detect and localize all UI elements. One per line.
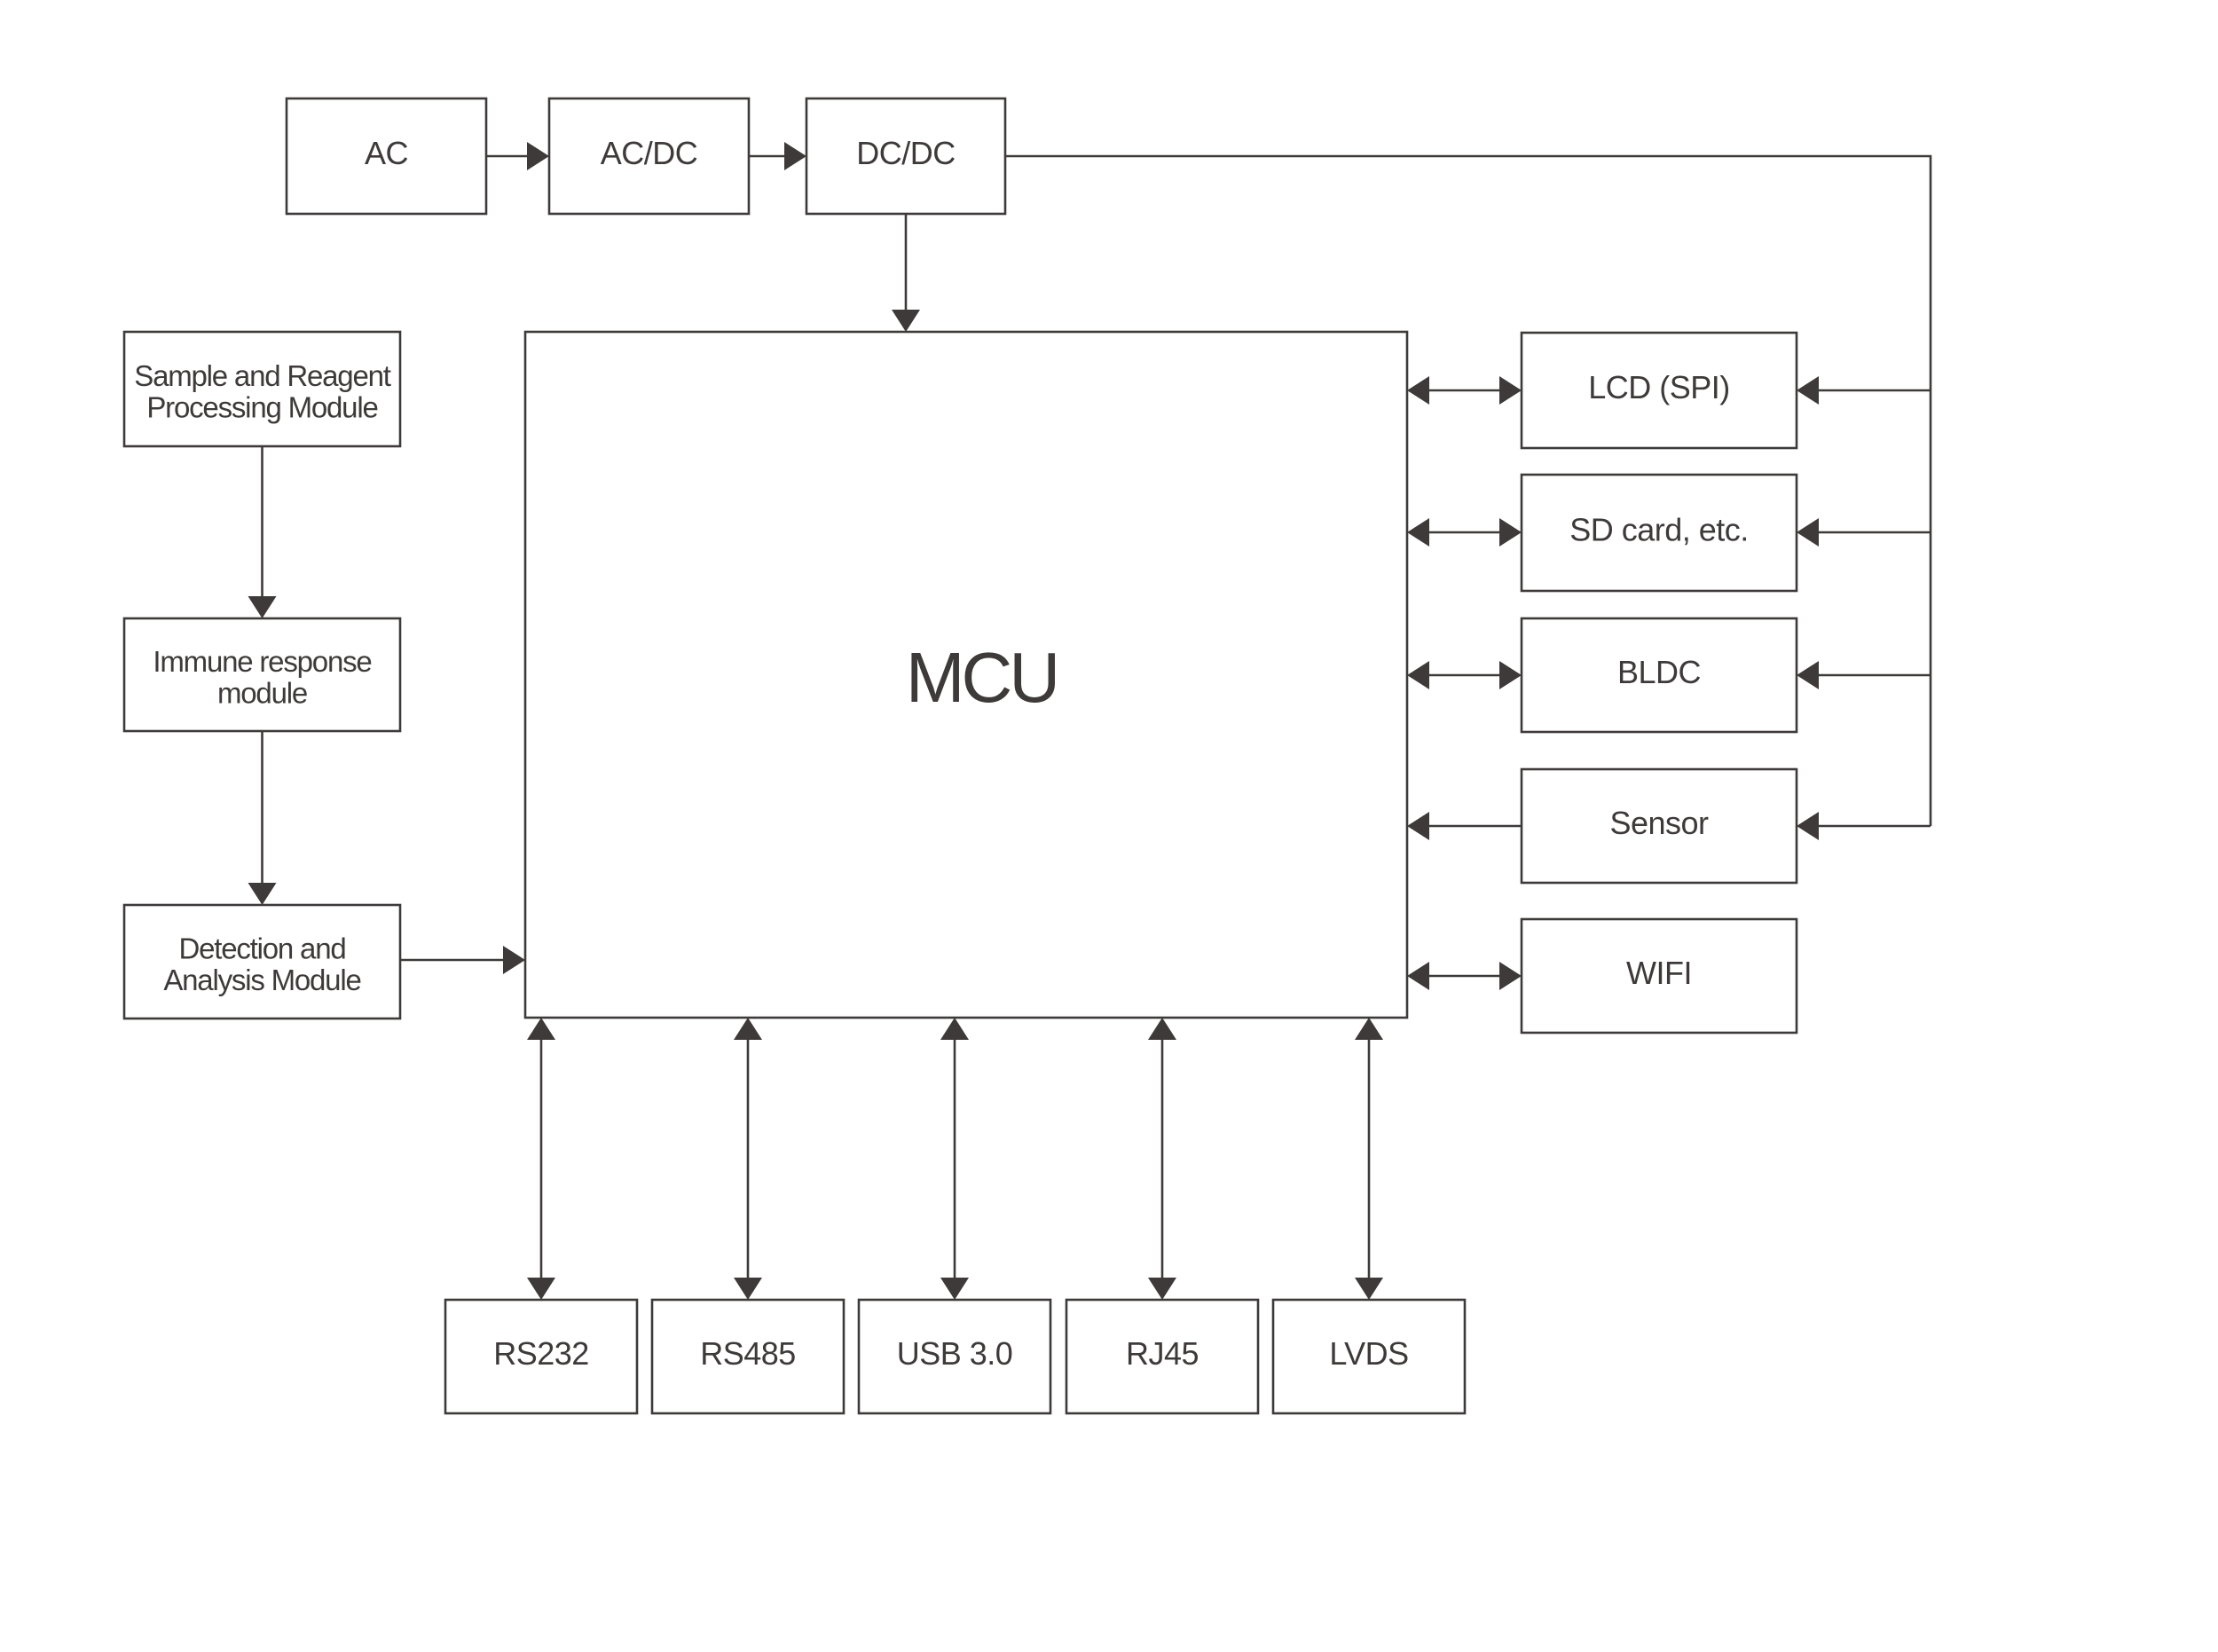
svg-text:DC/DC: DC/DC (856, 135, 956, 171)
svg-text:LVDS: LVDS (1329, 1335, 1408, 1372)
svg-text:AC: AC (365, 135, 408, 171)
svg-text:SD card, etc.: SD card, etc. (1569, 512, 1749, 548)
svg-text:RS232: RS232 (493, 1335, 589, 1372)
svg-text:Immune response: Immune response (153, 645, 371, 678)
svg-text:Detection and: Detection and (178, 932, 345, 965)
svg-text:AC/DC: AC/DC (601, 135, 698, 171)
svg-text:Processing Module: Processing Module (146, 391, 377, 424)
svg-text:RJ45: RJ45 (1126, 1335, 1199, 1372)
svg-text:WIFI: WIFI (1626, 955, 1692, 991)
svg-text:RS485: RS485 (700, 1335, 796, 1372)
svg-text:USB 3.0: USB 3.0 (897, 1335, 1013, 1372)
svg-text:Sample and Reagent: Sample and Reagent (134, 359, 390, 392)
svg-text:LCD (SPI): LCD (SPI) (1588, 369, 1730, 405)
svg-text:Analysis Module: Analysis Module (163, 964, 360, 996)
svg-text:module: module (217, 677, 307, 710)
svg-text:Sensor: Sensor (1609, 805, 1709, 841)
svg-text:MCU: MCU (906, 638, 1057, 717)
svg-text:BLDC: BLDC (1617, 654, 1701, 690)
